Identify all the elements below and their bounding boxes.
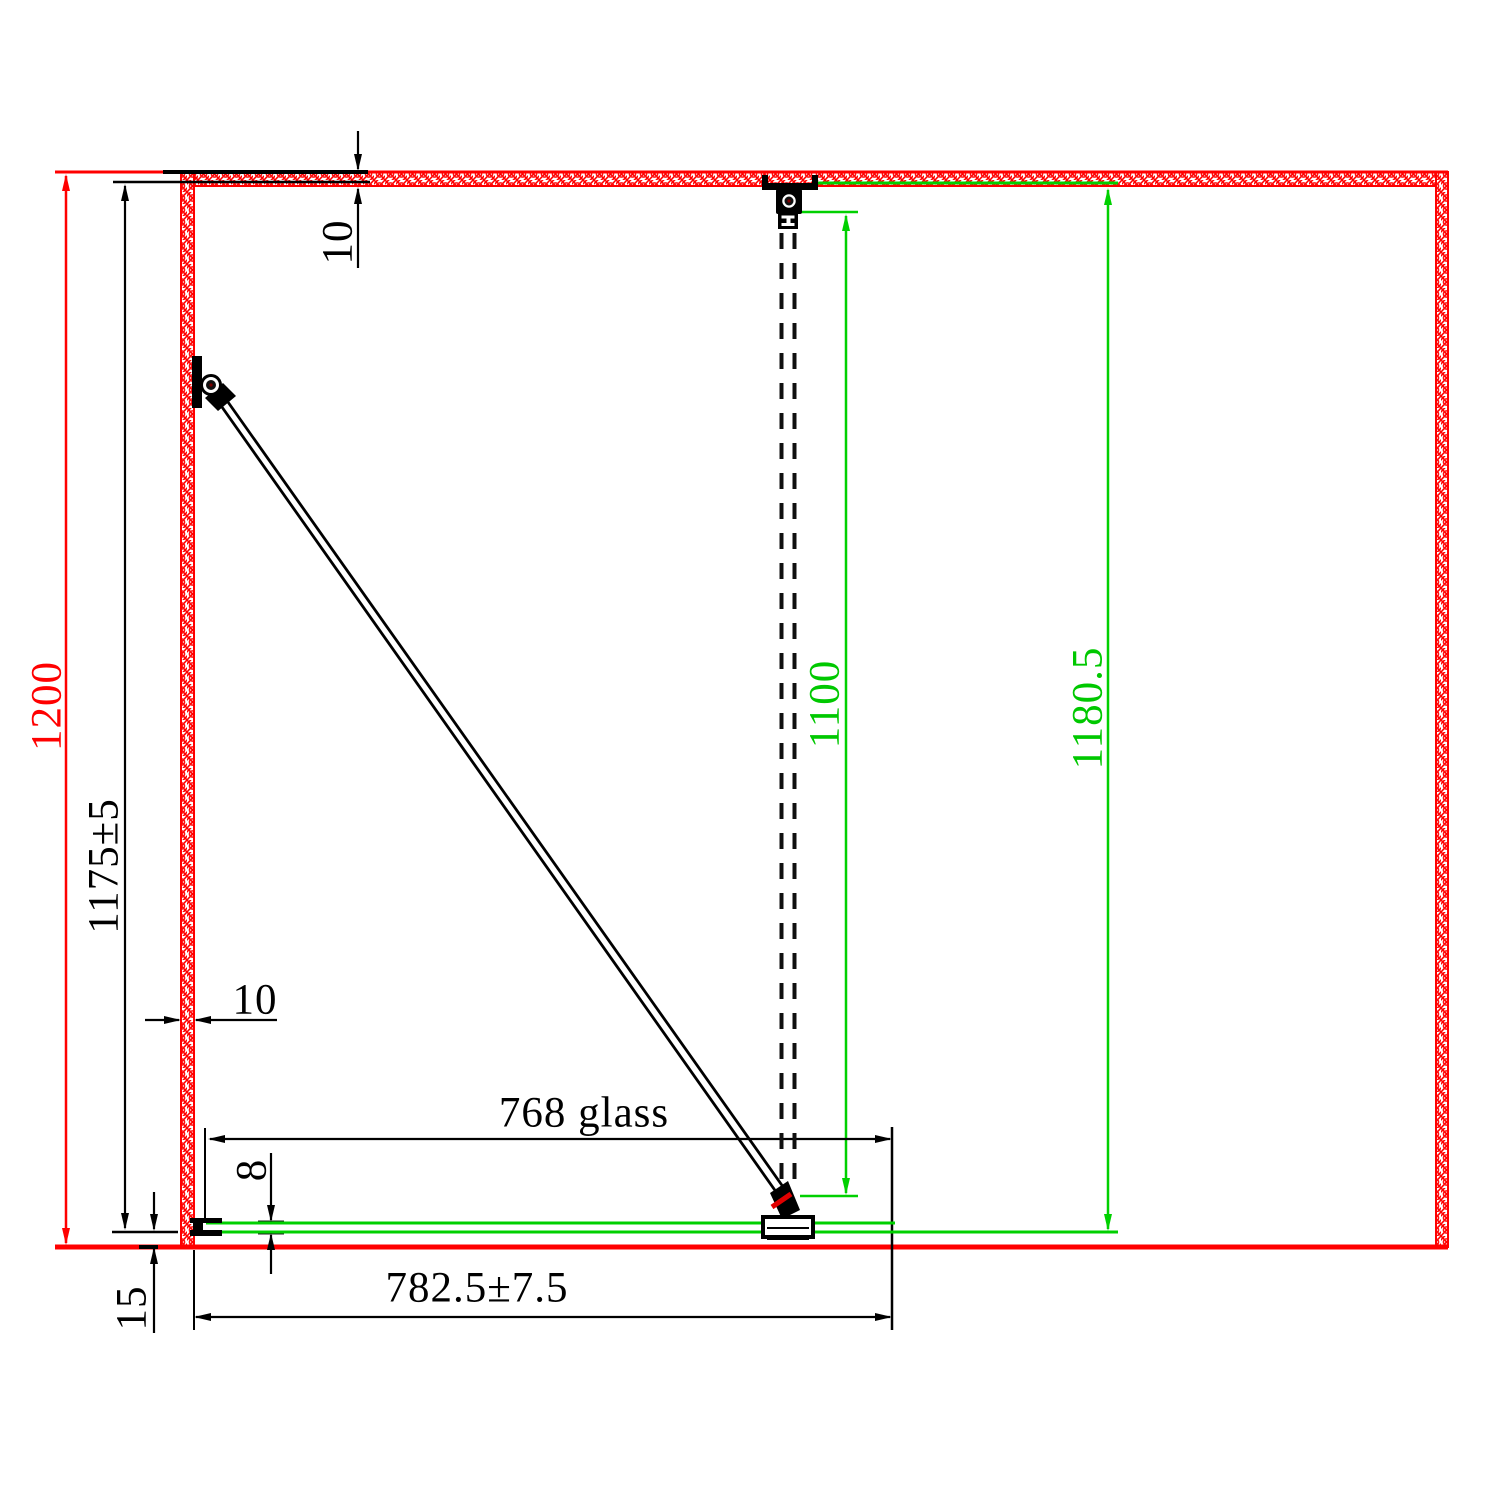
wall-structure: [55, 172, 1448, 1247]
vertical-support-bar-dashed: [782, 233, 795, 1180]
dim-label-8: 8: [229, 1159, 276, 1182]
arrow-up-icon: [1104, 188, 1112, 205]
dim-label-782-5: 782.5±7.5: [385, 1265, 568, 1312]
plate-right-tab: [812, 175, 818, 190]
dim-total-width: 782.5±7.5: [194, 1265, 892, 1322]
arrow-right-icon: [164, 1016, 181, 1024]
arrow-up-icon: [842, 214, 850, 231]
bar-lower-edge: [217, 400, 779, 1196]
bar-upper-edge: [223, 395, 786, 1191]
arrow-down-icon: [354, 154, 362, 171]
dim-side-wall-thickness: 10: [145, 977, 278, 1025]
pivot-center-dot: [209, 383, 212, 386]
dim-label-768-glass: 768 glass: [499, 1090, 669, 1137]
arrow-down-icon: [62, 1228, 70, 1245]
dim-label-15: 15: [109, 1286, 156, 1331]
technical-drawing-canvas: 1100 1180.5 1200 1175±5 15 8: [0, 0, 1500, 1500]
arrow-right-icon: [875, 1313, 892, 1321]
arrow-left-icon: [208, 1135, 225, 1143]
arrow-down-icon: [121, 1213, 129, 1230]
arrow-up-icon: [121, 184, 129, 201]
dim-label-1175: 1175±5: [81, 798, 128, 934]
bracket-pivot-dot: [787, 199, 790, 202]
dim-room-depth: 1200: [24, 174, 71, 1245]
arrow-up-icon: [150, 1247, 158, 1264]
ceiling-mount-plate: [762, 183, 818, 190]
arrow-down-icon: [150, 1214, 158, 1231]
arrow-right-icon: [875, 1135, 892, 1143]
ceiling-bracket: [762, 175, 818, 229]
dim-panel-total-depth: 1180.5: [1065, 188, 1113, 1231]
arrow-down-icon: [267, 1205, 275, 1222]
dim-label-10-left: 10: [233, 977, 278, 1024]
arrow-down-icon: [1104, 1214, 1112, 1231]
dim-top-wall-thickness: 10: [315, 131, 363, 268]
shower-panel-plan-drawing: 1100 1180.5 1200 1175±5 15 8: [0, 0, 1500, 1500]
arrow-up-icon: [354, 187, 362, 204]
dim-label-10-top: 10: [315, 220, 362, 265]
right-wall-hatch-band: [1436, 172, 1448, 1247]
dim-floor-gap: 15: [109, 1192, 159, 1333]
glass-clamp-assembly: [763, 1181, 813, 1240]
arrow-up-icon: [267, 1233, 275, 1250]
clamp-shoe-lip: [767, 1235, 809, 1240]
arrow-up-icon: [62, 174, 70, 191]
dim-label-1180-5: 1180.5: [1065, 647, 1112, 770]
wall-glass-channel: [190, 1218, 222, 1236]
dim-glass-thickness: 8: [229, 1153, 276, 1274]
arrow-left-icon: [194, 1313, 211, 1321]
dim-glass-width: 768 glass: [208, 1090, 892, 1144]
floor-tick: [139, 1245, 158, 1249]
reference-lines: [112, 172, 892, 1330]
dim-label-1200: 1200: [24, 661, 71, 751]
dim-panel-depth: 1175±5: [81, 184, 130, 1230]
dim-support-bar-length: 1100: [802, 214, 851, 1195]
clamp-slot-web: [787, 217, 791, 225]
glass-panel: [206, 183, 1118, 1232]
arrow-left-icon: [194, 1016, 211, 1024]
arrow-down-icon: [842, 1178, 850, 1195]
dim-label-1100: 1100: [802, 660, 849, 748]
diagonal-support-bar: [192, 356, 786, 1196]
left-wall-hatch-band: [181, 172, 194, 1247]
channel-web: [193, 1222, 203, 1231]
plate-left-tab: [762, 175, 768, 190]
